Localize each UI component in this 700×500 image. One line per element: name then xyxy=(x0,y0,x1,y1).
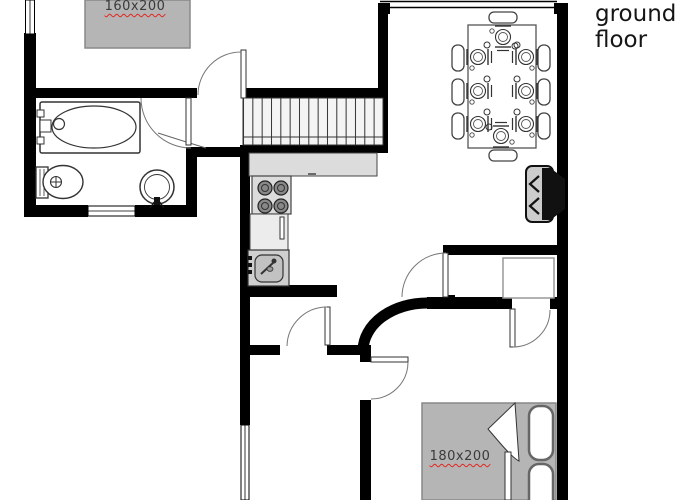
stairs xyxy=(158,98,383,148)
bathtub xyxy=(37,102,140,153)
wall-bedroom1-south-right xyxy=(245,88,388,98)
wall-kitchen-south xyxy=(240,285,337,297)
windows xyxy=(26,0,250,500)
kitchen-cabinet xyxy=(250,214,288,250)
toilet xyxy=(36,166,83,199)
door-hall xyxy=(287,307,330,346)
wall-bathroom-south-right xyxy=(135,205,197,217)
wall-under-stairs xyxy=(243,145,383,153)
door-bedroom2 xyxy=(371,357,408,399)
stove xyxy=(252,176,291,214)
wall-hall-south-left xyxy=(250,345,280,355)
wall-curved-corner xyxy=(363,303,427,350)
wall-right xyxy=(557,3,568,500)
kitchen-counter xyxy=(249,153,377,176)
sink-drain xyxy=(267,267,273,272)
dining-chair xyxy=(538,45,550,71)
floor-title-line1: ground xyxy=(595,1,676,27)
dining-chair xyxy=(538,113,550,139)
bathroom-fixtures xyxy=(36,102,174,208)
wall-left xyxy=(24,33,36,217)
floorplan-canvas: 160x200 180x200 ground floor xyxy=(0,0,700,500)
window-bathroom xyxy=(88,206,135,216)
wardrobe xyxy=(503,258,554,298)
kitchen xyxy=(248,153,377,286)
window-top-band xyxy=(380,2,557,8)
pillow xyxy=(529,406,553,460)
door-storage xyxy=(402,253,448,297)
cabinet-handle xyxy=(280,217,284,239)
door-bathroom xyxy=(141,98,191,148)
wall-top-cap-left xyxy=(378,3,390,14)
dining-chair xyxy=(452,45,464,71)
bathtub-drain xyxy=(54,119,65,130)
dining-set xyxy=(452,12,550,161)
wall-bedroom2-west-bottom xyxy=(360,400,371,500)
kitchen-sink xyxy=(248,250,289,286)
wall-landing-south xyxy=(186,147,247,157)
dining-chair xyxy=(489,12,517,23)
floorplan-svg xyxy=(0,0,700,500)
dining-chair xyxy=(489,150,517,161)
wall-bedroom1-south-left xyxy=(30,88,197,98)
window-west xyxy=(241,425,249,500)
dining-chair xyxy=(452,79,464,105)
bed1-size-label: 160x200 xyxy=(93,0,177,14)
wall-bedroom2-north-left xyxy=(427,297,512,309)
sheet-edge xyxy=(505,452,511,500)
bathroom-sink xyxy=(140,170,174,208)
floor-title-line2: floor xyxy=(595,27,676,53)
dining-chair xyxy=(452,113,464,139)
wall-bedroom2-north-right xyxy=(550,297,557,309)
window-left xyxy=(26,0,35,34)
wall-bathroom-south-left xyxy=(24,205,88,217)
floor-title: ground floor xyxy=(595,1,676,53)
bed2-size-label: 180x200 xyxy=(424,449,496,464)
door-bedroom2-top xyxy=(510,309,550,347)
wall-storage-north xyxy=(443,245,557,255)
pillow xyxy=(529,464,553,500)
dining-chair xyxy=(538,79,550,105)
door-bedroom1 xyxy=(198,50,246,98)
